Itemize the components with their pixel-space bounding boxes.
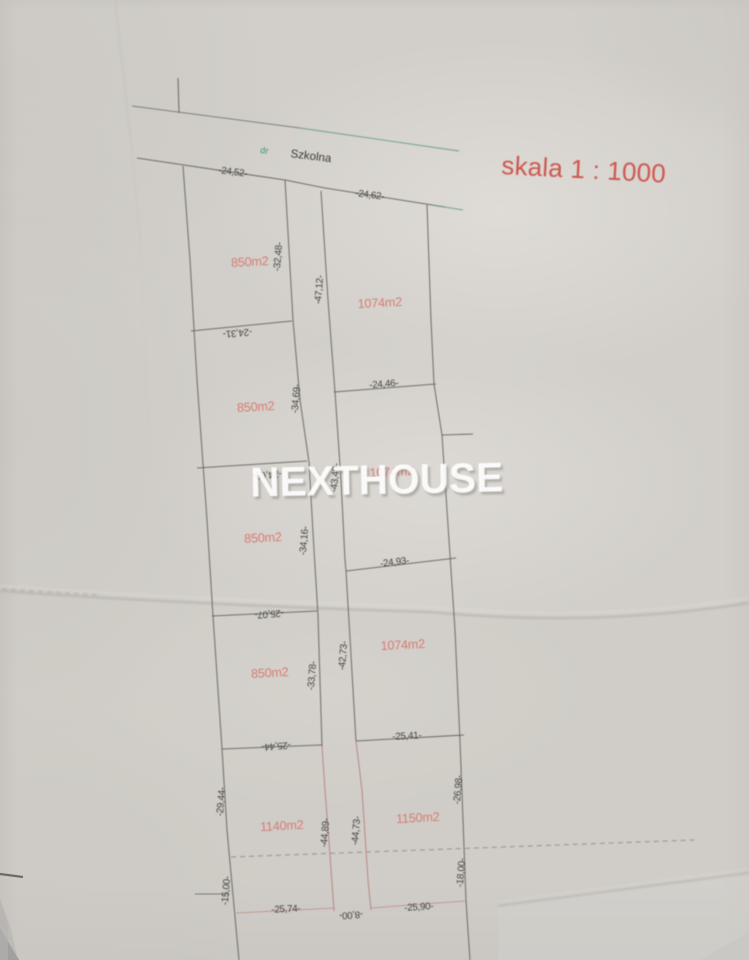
svg-text:dr: dr: [260, 145, 269, 156]
svg-text:850m2: 850m2: [244, 530, 282, 546]
svg-text:-25,07-: -25,07-: [254, 607, 284, 620]
svg-text:-25,74-: -25,74-: [271, 903, 300, 915]
svg-text:-24,46-: -24,46-: [369, 378, 399, 391]
svg-text:-25,90-: -25,90-: [404, 901, 434, 914]
svg-text:-25,44-: -25,44-: [261, 739, 291, 752]
svg-text:1074m2: 1074m2: [357, 295, 402, 311]
svg-text:-25,41-: -25,41-: [392, 730, 422, 743]
svg-text:-8,00-: -8,00-: [339, 908, 364, 921]
svg-text:1140m2: 1140m2: [260, 818, 304, 834]
svg-text:1074m2: 1074m2: [380, 637, 425, 653]
svg-text:1150m2: 1150m2: [396, 810, 440, 826]
svg-text:850m2: 850m2: [251, 665, 289, 681]
svg-text:850m2: 850m2: [237, 399, 275, 415]
svg-text:NEXTHOUSE: NEXTHOUSE: [250, 453, 504, 505]
svg-text:850m2: 850m2: [231, 254, 269, 270]
